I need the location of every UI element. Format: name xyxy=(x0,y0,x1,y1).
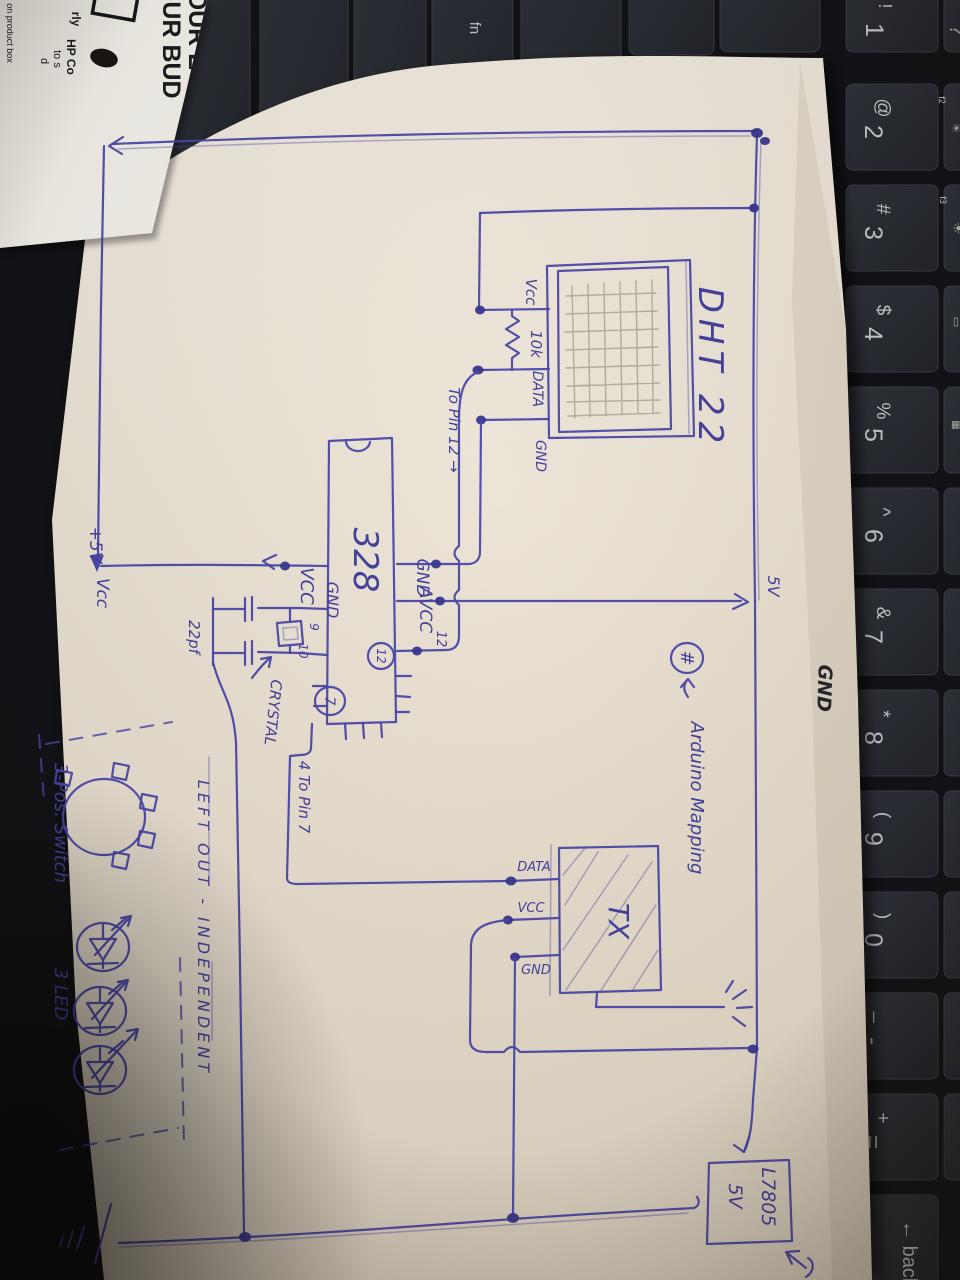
photo-scene: fn ! 1 @ 2 # 3 $ 4 % 5 xyxy=(0,0,960,1280)
corner-shadow-overlay xyxy=(0,0,960,1280)
